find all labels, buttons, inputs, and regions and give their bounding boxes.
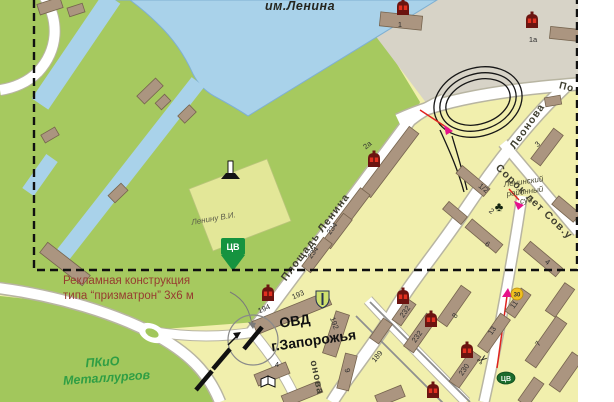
svg-text:ПКиО: ПКиО (85, 354, 120, 370)
building-number: 1a (529, 35, 538, 44)
green-oval-marker: ЦВ (497, 372, 515, 384)
tree-icon: ♣ (495, 199, 504, 214)
park-name-label: им.Ленина (265, 0, 335, 13)
shop-building-icon (397, 0, 409, 15)
svg-text:суд: суд (519, 195, 533, 206)
building-number: 4 (275, 360, 279, 369)
building-number: 1 (398, 20, 402, 29)
map-document: 11a2a31/22642342341941931924918982322322… (0, 0, 614, 402)
yellow-sign-icon: 30 (511, 288, 523, 300)
city-map: 11a2a31/22642342341941931924918982322322… (0, 0, 614, 402)
annotation-line2: типа “призматрон” 3х6 м (63, 290, 194, 302)
svg-text:30: 30 (514, 293, 521, 299)
annotation-line1: Рекламная конструкция (63, 275, 190, 287)
svg-text:ЦВ: ЦВ (226, 242, 240, 252)
svg-text:ЦВ: ЦВ (501, 376, 511, 383)
